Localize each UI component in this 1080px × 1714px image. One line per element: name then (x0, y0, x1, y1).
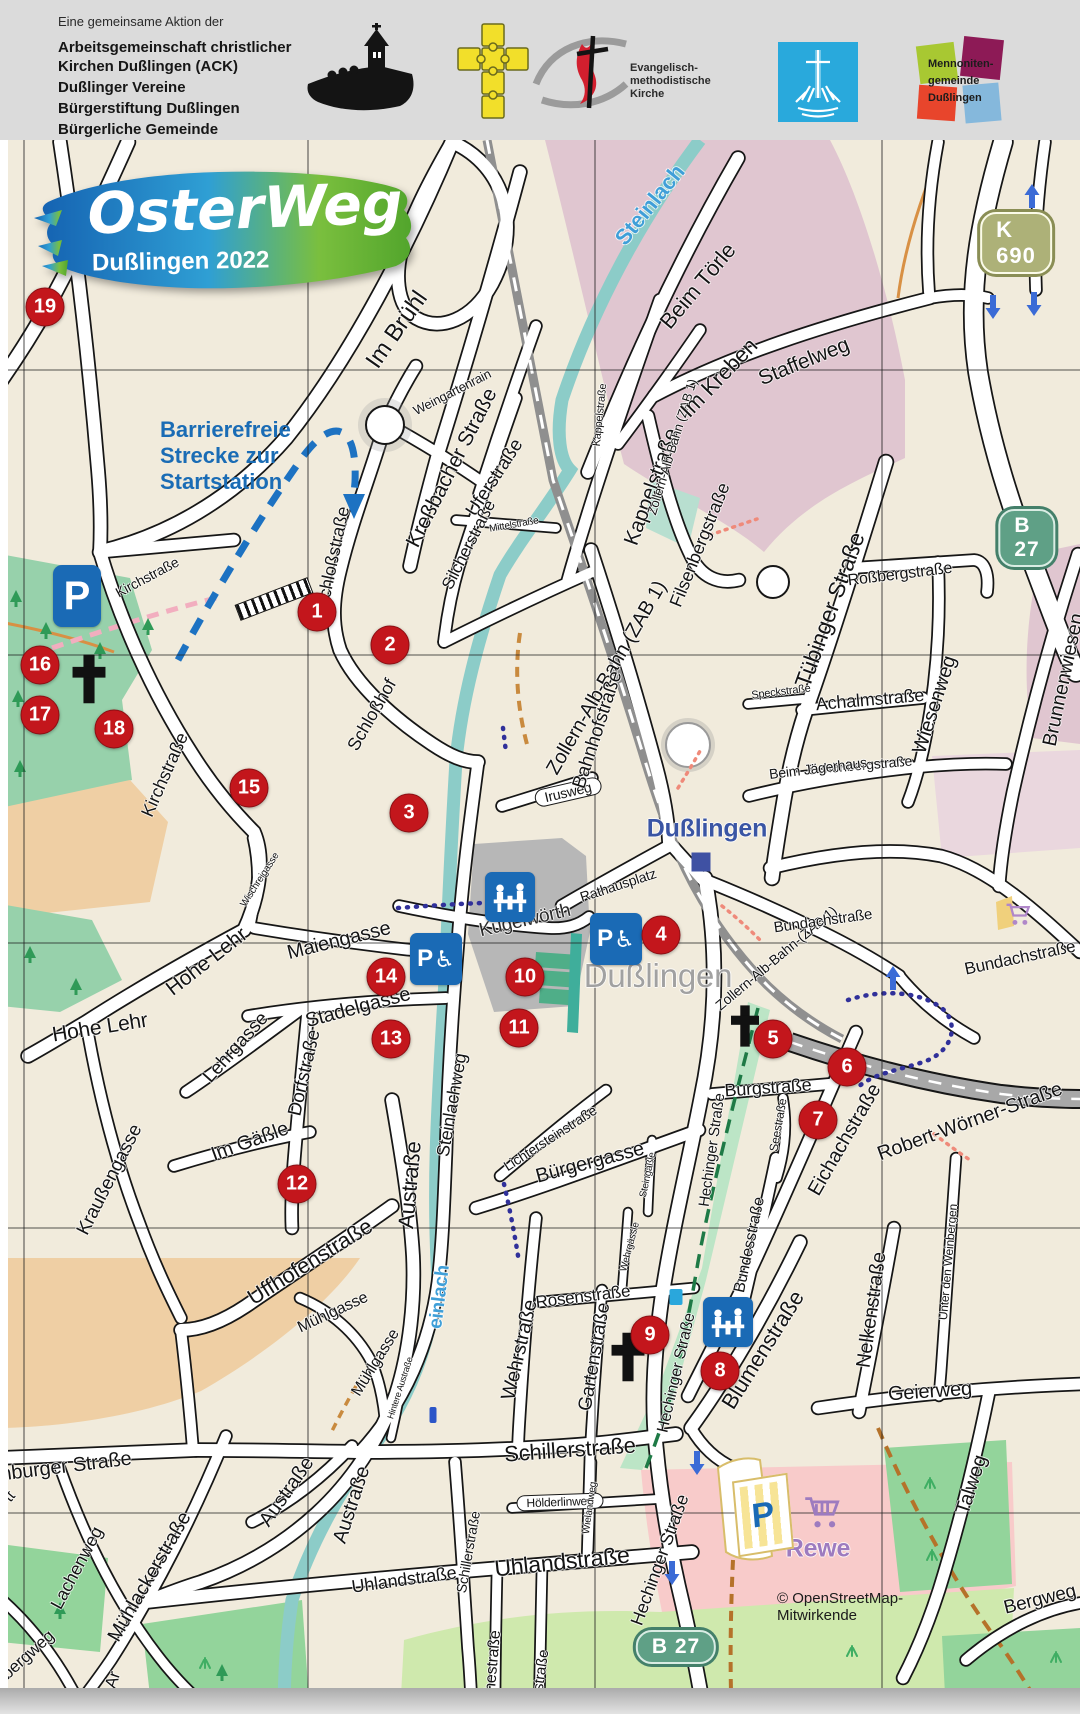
street-label: Rathausplatz (578, 865, 658, 905)
street-label: Mittelstraße (489, 515, 540, 534)
one-way-arrow-icon (885, 965, 901, 991)
street-label: Geierweg (887, 1378, 972, 1407)
osterweg-logo: OsterWeg Dußlingen 2022 (28, 160, 420, 296)
street-label: Roßbergstraße (847, 560, 953, 591)
street-label: einlach (425, 1264, 455, 1330)
street-label: Beim Törle (655, 238, 742, 334)
street-label: Wehrstraße (497, 1298, 542, 1403)
stop-marker-icon (430, 1407, 437, 1423)
disabled-parking-icon: P♿ (410, 933, 462, 985)
one-way-arrow-icon (689, 1450, 705, 1476)
header: Eine gemeinsame Aktion der Arbeitsgemein… (0, 0, 1080, 140)
page: OsterWeg Dußlingen 2022 Barrierefreie St… (0, 0, 1080, 1714)
street-label: Filsenbergstraße (666, 480, 735, 610)
bottom-page-edge (0, 1688, 1080, 1714)
shopping-cart-small-icon (1005, 902, 1031, 926)
street-label: Steinlachweg (433, 1052, 472, 1159)
station-marker-6: 6 (828, 1048, 867, 1087)
street-label: Kirchstraße (113, 554, 182, 601)
note-line-2: Strecke zur (160, 443, 291, 469)
osm-attribution: © OpenStreetMap-Mitwirkende (777, 1590, 979, 1624)
station-name-label: Dußlingen (647, 815, 767, 844)
station-marker-11: 11 (500, 1009, 539, 1048)
arrow-glyph (1026, 291, 1042, 317)
street-label: Im Gäßle (208, 1117, 292, 1166)
street-label: Speckstraße (751, 682, 812, 701)
road-ref-badge: K 690 (980, 212, 1052, 274)
station-marker-8: 8 (701, 1352, 740, 1391)
station-marker-13: 13 (372, 1020, 411, 1059)
parking-p: P (597, 925, 613, 953)
picnic-area-icon (703, 1297, 753, 1347)
wheelchair-icon: ♿ (434, 946, 455, 973)
street-label: Hohe Lehr (162, 923, 253, 1001)
street-label: Brunnenwiesen (1039, 611, 1080, 748)
street-label: Robert-Wörner-Straße (874, 1078, 1065, 1166)
org-buergerstiftung: Bürgerstiftung Dußlingen (58, 99, 308, 118)
mennoniten-line-1: Mennoniten- (928, 56, 993, 73)
one-way-arrow-icon (985, 294, 1001, 320)
road-ref-badge: B 27 (998, 509, 1055, 567)
street-label: Wehrgässle (618, 1221, 642, 1273)
station-marker-3: 3 (390, 794, 429, 833)
street-label: Schillerstraße (503, 1432, 636, 1467)
org-vereine: Dußlinger Vereine (58, 78, 308, 97)
map-canvas: OsterWeg Dußlingen 2022 Barrierefreie St… (0, 0, 1080, 1714)
arrow-glyph (985, 294, 1001, 320)
station-marker-15: 15 (230, 769, 269, 808)
street-label: Austraße (329, 1464, 375, 1547)
arrow-glyph (1024, 183, 1040, 209)
street-label: Austraße (255, 1453, 319, 1531)
street-label: Staffelweg (755, 333, 853, 391)
organization-list: Arbeitsgemeinschaft christlicher Kirchen… (58, 38, 308, 141)
street-label: Hintere Austraße (385, 1356, 414, 1420)
road-ref-badge: B 27 (636, 1630, 716, 1664)
disabled-parking-icon: P♿ (590, 913, 642, 965)
emk-logo-icon (530, 30, 630, 116)
station-marker-19: 19 (26, 288, 65, 327)
street-label: Unter den Weinbergen (936, 1203, 960, 1320)
wheelchair-icon: ♿ (614, 926, 635, 953)
street-label: Rosenstraße (535, 1281, 632, 1312)
rewe-parking-p: P (750, 1494, 776, 1536)
note-line-3: Startstation (160, 469, 291, 495)
station-marker-12: 12 (278, 1165, 317, 1204)
emk-line-3: Kirche (630, 88, 711, 101)
station-marker-1: 1 (298, 593, 337, 632)
street-label: Bundachstraße (963, 937, 1077, 980)
emk-line-2: methodistische (630, 75, 711, 88)
station-marker-16: 16 (21, 646, 60, 685)
osterweg-subtitle: Dußlingen 2022 (92, 246, 270, 277)
station-marker-10: 10 (506, 958, 545, 997)
shopping-cart-icon (803, 1495, 841, 1529)
street-label: Hechinger Straße (627, 1492, 694, 1629)
station-marker-7: 7 (799, 1101, 838, 1140)
street-label: Wischreigasse (238, 851, 281, 909)
mennoniten-logo-text: Mennoniten- gemeinde Dußlingen (928, 56, 993, 107)
station-marker-4: 4 (642, 916, 681, 955)
mennoniten-line-2: gemeinde (928, 73, 993, 90)
mennoniten-line-3: Dußlingen (928, 90, 993, 107)
station-marker-5: 5 (754, 1020, 793, 1059)
street-label: Talweg (952, 1452, 993, 1517)
street-label: Kraußengasse (73, 1121, 148, 1239)
street-label: Hohe Lehr (51, 1009, 150, 1048)
street-label: Mühlgasse (295, 1289, 371, 1337)
org-ack: Arbeitsgemeinschaft christlicher Kirchen… (58, 38, 308, 76)
street-label: Kappelstraße (591, 383, 610, 447)
barrier-free-note: Barrierefreie Strecke zur Startstation (160, 417, 291, 495)
emk-line-1: Evangelisch- (630, 62, 711, 75)
street-label: Lachenweg (47, 1523, 108, 1613)
arrow-glyph (664, 1560, 680, 1586)
cart-glyph-small (1005, 902, 1031, 926)
puzzle-cross-logo-icon (456, 22, 530, 122)
arrow-glyph (885, 965, 901, 991)
street-label: Maiengasse (285, 917, 393, 965)
station-marker-14: 14 (367, 958, 406, 997)
street-label: Lehrgasse (199, 1008, 274, 1087)
street-label: bergweg (0, 1626, 58, 1684)
street-label: Kirchstraße (137, 730, 193, 821)
street-label: Dorfstraße (284, 1028, 325, 1118)
one-way-arrow-icon (1026, 291, 1042, 317)
street-label: Seestraße (766, 1097, 789, 1152)
street-label: Hechinger Straße (696, 1092, 729, 1208)
cart-glyph (803, 1495, 841, 1529)
street-label: Bundesstraße (731, 1196, 769, 1295)
station-marker-9: 9 (631, 1316, 670, 1355)
supermarket-label: Rewe (786, 1535, 851, 1564)
header-intro: Eine gemeinsame Aktion der (58, 14, 223, 29)
street-label: Burgstraße (724, 1074, 812, 1101)
street-label: Steinlach (610, 160, 691, 251)
parking-p: P (417, 945, 433, 973)
parking-icon: P (53, 565, 101, 627)
street-label: Mühlackerstraße (104, 1508, 197, 1646)
street-label: Eichachstraße (804, 1080, 887, 1200)
picnic-pictogram (490, 877, 530, 917)
station-marker-18: 18 (95, 710, 134, 749)
street-label: Uhlandstraße (493, 1541, 631, 1582)
street-label: Austraße (393, 1140, 427, 1230)
church-hill-logo-icon (302, 22, 418, 114)
street-label: nburger Straße (0, 1448, 133, 1487)
note-line-1: Barrierefreie (160, 417, 291, 443)
picnic-pictogram (708, 1302, 748, 1342)
street-label: Achalmstraße (815, 685, 925, 715)
railway-station-icon (692, 853, 711, 872)
street-label: Bergweg (1002, 1580, 1079, 1619)
street-label: Im Brühl (360, 286, 433, 374)
blue-cross-logo-icon (778, 42, 858, 122)
street-label: Beim Jägerhaus (768, 754, 868, 782)
one-way-arrow-icon (664, 1560, 680, 1586)
emk-logo-text: Evangelisch- methodistische Kirche (630, 62, 711, 101)
arrow-glyph (689, 1450, 705, 1476)
cross-glyph (69, 653, 109, 705)
osterweg-title: OsterWeg (79, 170, 411, 247)
one-way-arrow-icon (1024, 183, 1040, 209)
station-marker-17: 17 (21, 696, 60, 735)
church-cross-icon (69, 653, 109, 705)
bus-stop-icon (670, 1289, 683, 1305)
rewe-parking-building-icon: P (732, 1473, 794, 1557)
picnic-area-icon (485, 872, 535, 922)
street-label: Uhlandstraße (350, 1562, 458, 1598)
street-label: Tübinger Straße (789, 529, 870, 692)
street-label: Schloßhof (343, 675, 401, 754)
street-label: Nelkenstraße (853, 1251, 892, 1370)
org-gemeinde: Bürgerliche Gemeinde (58, 120, 308, 139)
station-marker-2: 2 (371, 626, 410, 665)
